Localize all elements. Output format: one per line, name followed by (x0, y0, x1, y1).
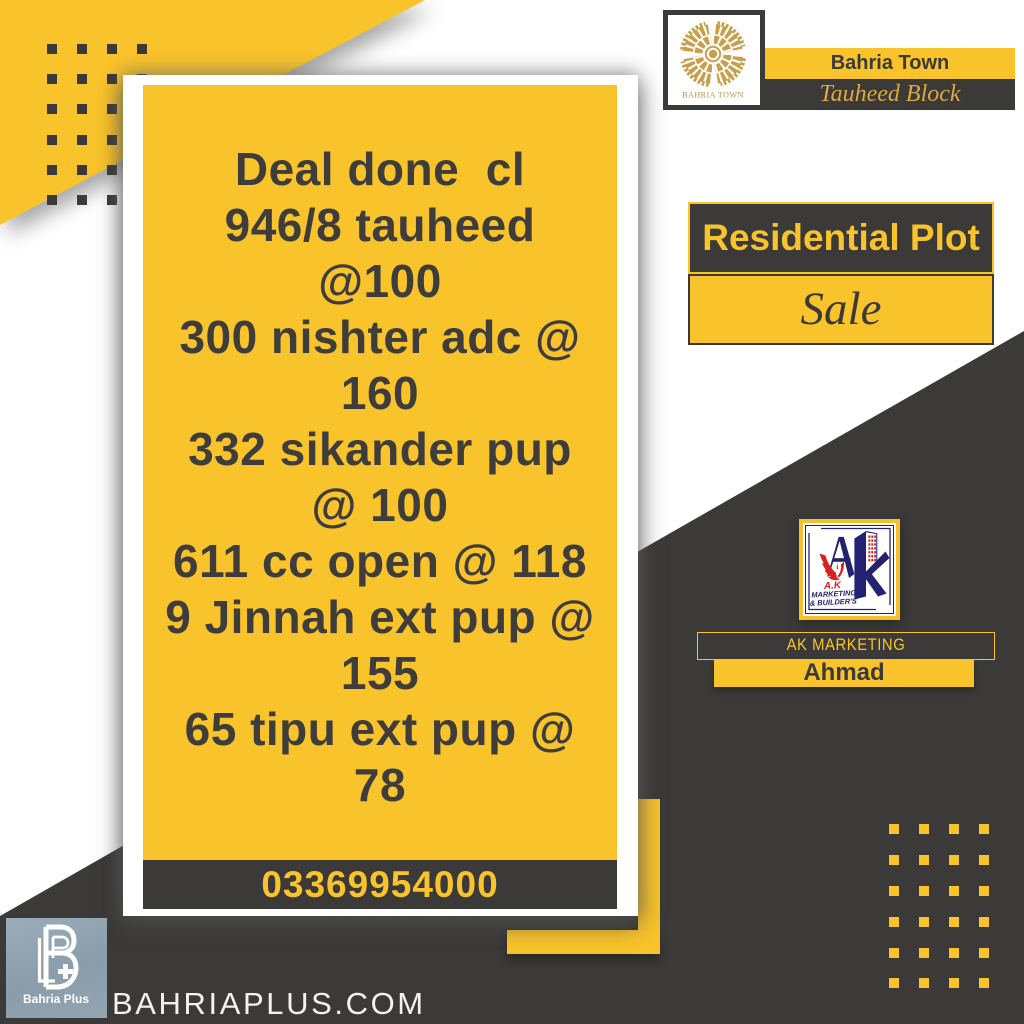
svg-text:Bahria Plus: Bahria Plus (23, 992, 89, 1006)
svg-text:BAHRIA TOWN: BAHRIA TOWN (682, 91, 744, 100)
